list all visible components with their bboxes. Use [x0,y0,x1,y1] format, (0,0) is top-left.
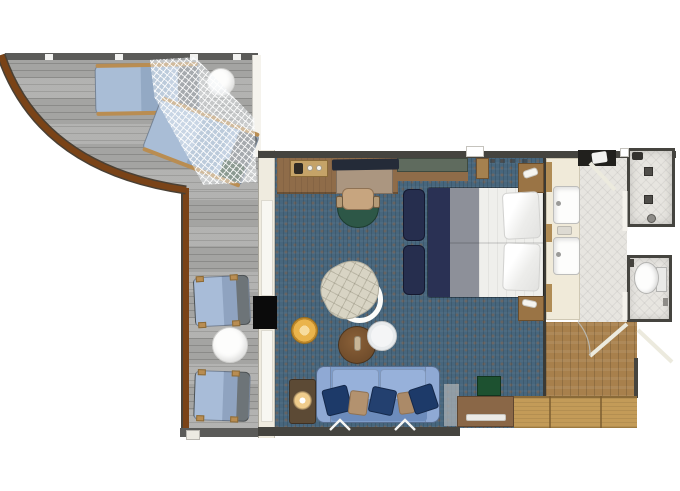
chair-arm [230,274,238,280]
toilet-bowl [634,262,659,294]
balcony-railing-left [181,188,189,432]
wardrobe-divider [549,396,551,428]
throw-pillow [368,386,398,417]
railing-post [115,54,123,60]
coffee-table-handle [354,336,361,351]
shower-control [647,214,656,223]
round-deck-table [212,327,248,363]
wall-mounted-tv [253,296,277,329]
wardrobe-divider [600,396,602,428]
bathroom-floor [578,158,627,322]
wall-shelf [397,158,468,172]
chair-arm [230,416,238,422]
chair-arm [232,320,240,326]
minibar-cabinet [477,376,501,396]
wall-end-cap [186,430,200,440]
railing-post [233,54,241,60]
sliding-glass-door [261,330,273,422]
amber-pouf [291,317,318,344]
desk-chair-seat [342,188,374,210]
wall-pillar [466,146,484,157]
faucet [556,201,561,206]
bed-foot-throw [428,188,450,297]
throw-pillow [348,390,370,416]
dresser [457,396,514,427]
deck-chair [193,370,251,422]
curtain-mark [490,159,495,163]
shower-head [632,152,643,160]
vanity-wood-trim [546,284,552,312]
sliding-glass-door [261,200,273,296]
flat-tv-on-desk [332,158,399,170]
bed-pillow [502,191,541,240]
foot-bench [403,245,425,295]
entry-wall [634,358,638,398]
bed-pillow [502,242,541,291]
cup [307,165,313,171]
towel [591,151,607,164]
deck-chair [193,275,252,328]
curtain-mark [500,159,505,163]
vanity-wood-trim [546,224,552,242]
chair-arm [196,276,204,282]
chair-arm [198,322,206,328]
vanity-wood-trim [546,162,552,192]
kettle [294,163,303,174]
round-side-table [367,321,397,351]
chair-arm [196,415,204,421]
desk-chair-arm [373,196,380,208]
floor-plan [0,0,680,491]
table-lamp [293,391,312,410]
chair-arm [232,370,240,376]
cup [316,165,322,171]
cabin-wall-bottom [258,427,460,436]
wood-cabinet [476,158,489,179]
entrance-door-leaf [638,330,672,362]
floor-drain [644,167,653,176]
curtain-mark [510,159,515,163]
wall-fixture [663,298,668,306]
foot-bench [403,189,425,241]
dresser-tray [466,414,506,421]
chair-arm [198,369,206,375]
toilet-paper-holder [629,259,634,267]
wardrobe [514,396,637,428]
balcony-wall-with-doors [258,150,275,438]
balcony-railing-top [5,53,258,60]
entry-wood-floor [546,322,637,398]
railing-post [45,54,53,60]
soap-dish [557,226,572,235]
wall-shelf-wood [397,172,468,181]
minibar-tray [290,160,328,177]
floor-drain [644,195,653,204]
wall-pillar [620,148,629,157]
faucet [556,252,561,257]
desk-chair-arm [336,196,343,208]
